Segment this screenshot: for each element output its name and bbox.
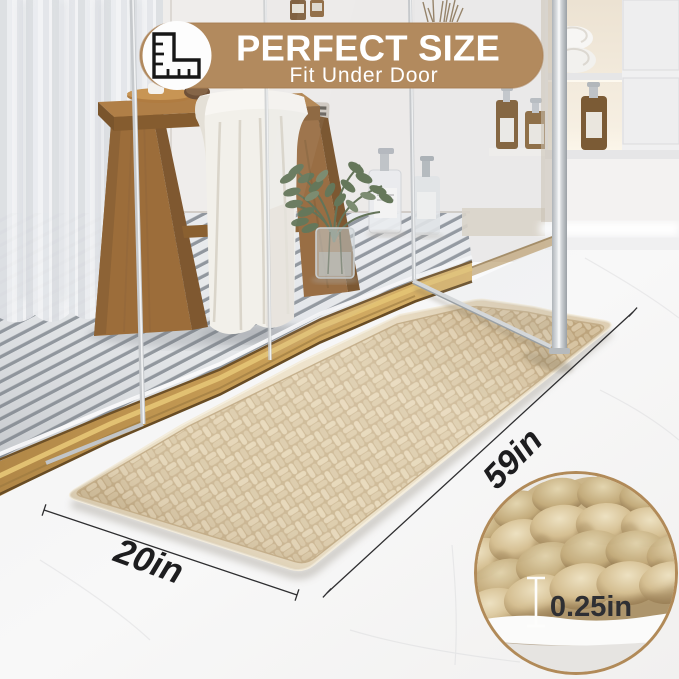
- svg-text:0.25in: 0.25in: [550, 591, 632, 623]
- svg-text:PERFECT SIZE: PERFECT SIZE: [236, 28, 500, 69]
- svg-text:Fit Under Door: Fit Under Door: [290, 64, 439, 87]
